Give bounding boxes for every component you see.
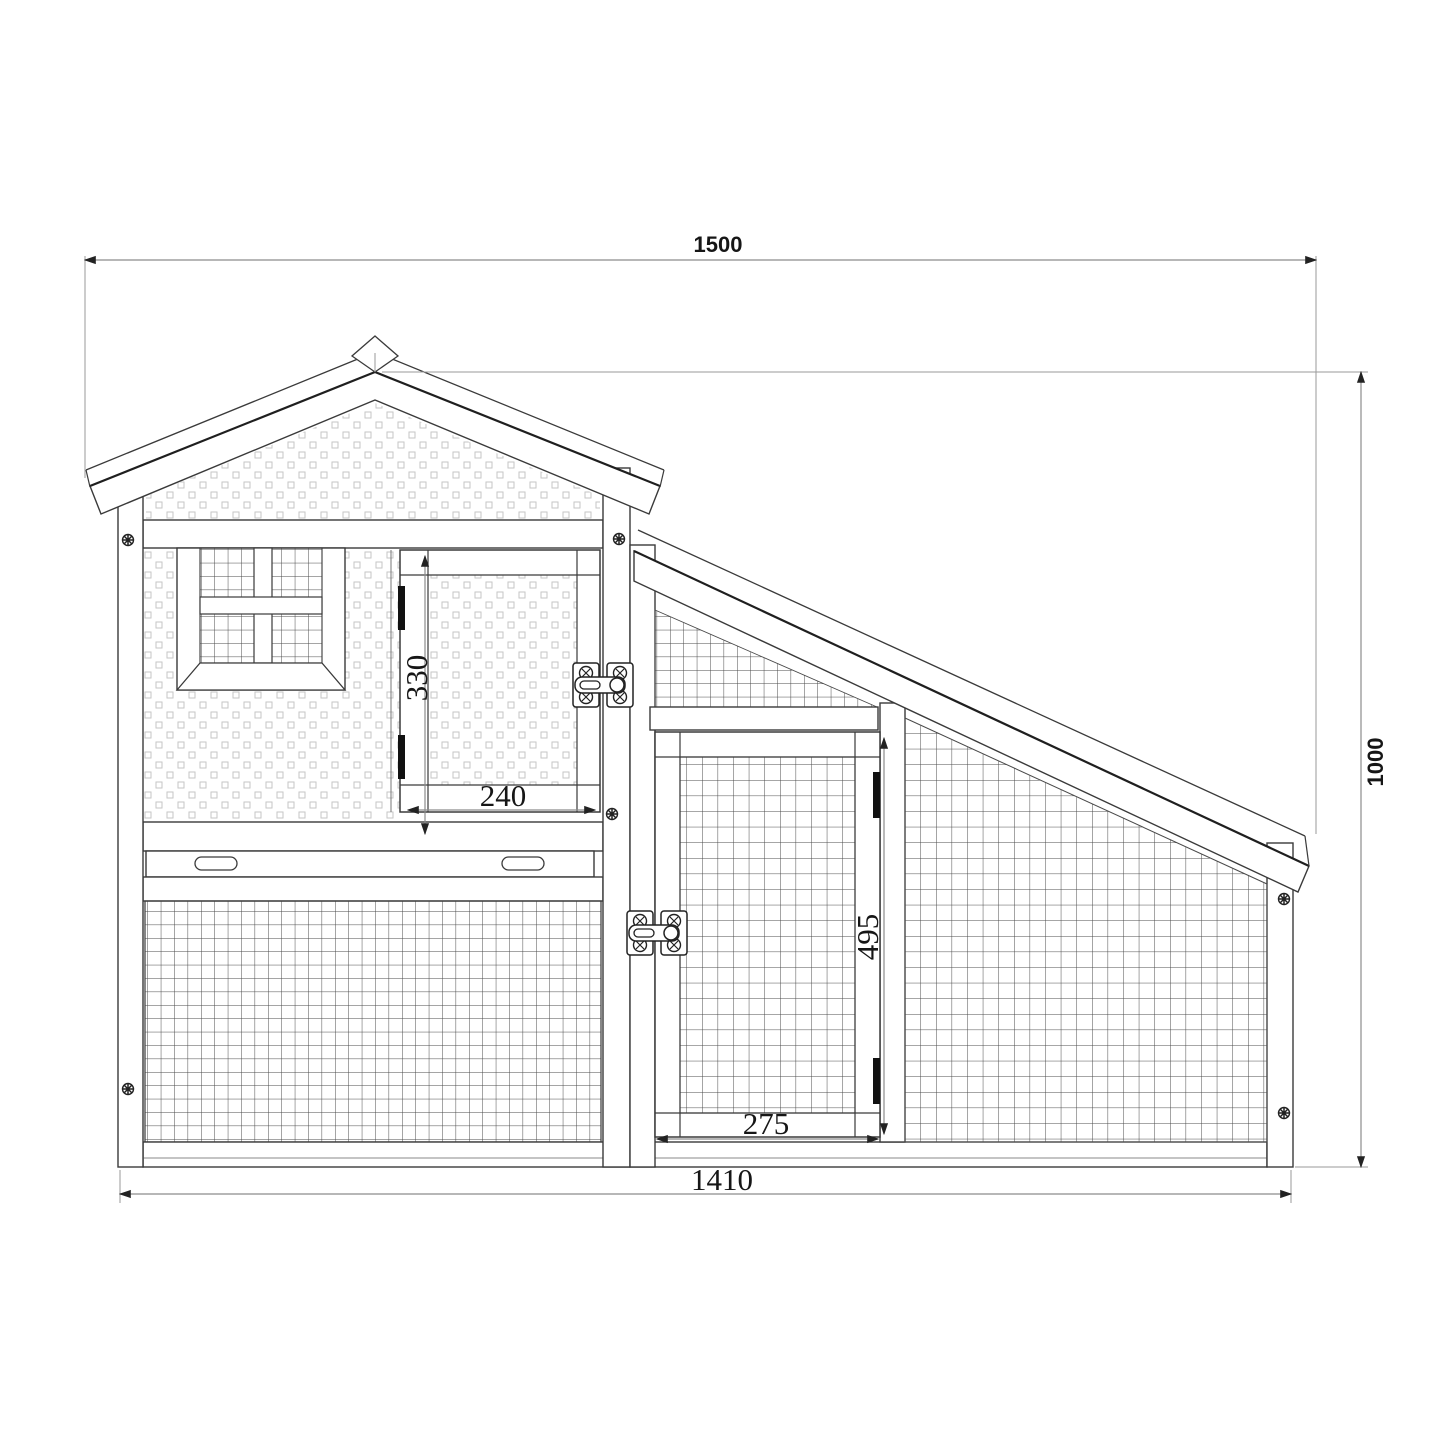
dim-house-door-height-label: 330 <box>399 655 434 702</box>
left-corner-post <box>118 478 143 1167</box>
screw-icon <box>123 535 134 546</box>
hutch-elevation-drawing: 1500 1000 1410 330 240 495 275 <box>0 0 1445 1445</box>
screw-icon <box>607 809 618 820</box>
tray-handle-right[interactable] <box>502 857 544 870</box>
dim-overall-height-label: 1000 <box>1363 738 1388 787</box>
run-door-mesh <box>680 757 855 1113</box>
dim-overall-width-label: 1500 <box>694 232 743 257</box>
house-door-panel <box>428 575 577 785</box>
hinge-icon <box>873 1058 880 1104</box>
tray-handle-left[interactable] <box>195 857 237 870</box>
window-mullion-horizontal <box>200 597 322 614</box>
screw-icon <box>1279 1108 1290 1119</box>
run-door-header-rail <box>650 707 878 730</box>
right-corner-post <box>1267 843 1293 1167</box>
mesh-window <box>177 548 345 690</box>
dim-run-door-height-label: 495 <box>850 914 885 961</box>
house-floor-band <box>143 822 603 851</box>
hinge-icon <box>398 586 405 630</box>
screw-icon <box>1279 894 1290 905</box>
dim-base-width-label: 1410 <box>691 1162 753 1197</box>
window-sill <box>177 663 345 690</box>
house-header-beam <box>143 520 603 548</box>
run-left-post <box>630 545 655 1167</box>
technical-drawing-canvas: 1500 1000 1410 330 240 495 275 <box>0 0 1445 1445</box>
dim-house-door-width-label: 240 <box>480 778 527 813</box>
hinge-icon <box>873 772 880 818</box>
dim-run-door-width-label: 275 <box>743 1106 790 1141</box>
house-lower-mesh-panel <box>145 901 601 1142</box>
run-door[interactable] <box>655 732 880 1137</box>
hinge-icon <box>398 735 405 779</box>
tray-support-band <box>143 877 603 901</box>
screw-icon <box>614 534 625 545</box>
screw-icon <box>123 1084 134 1095</box>
